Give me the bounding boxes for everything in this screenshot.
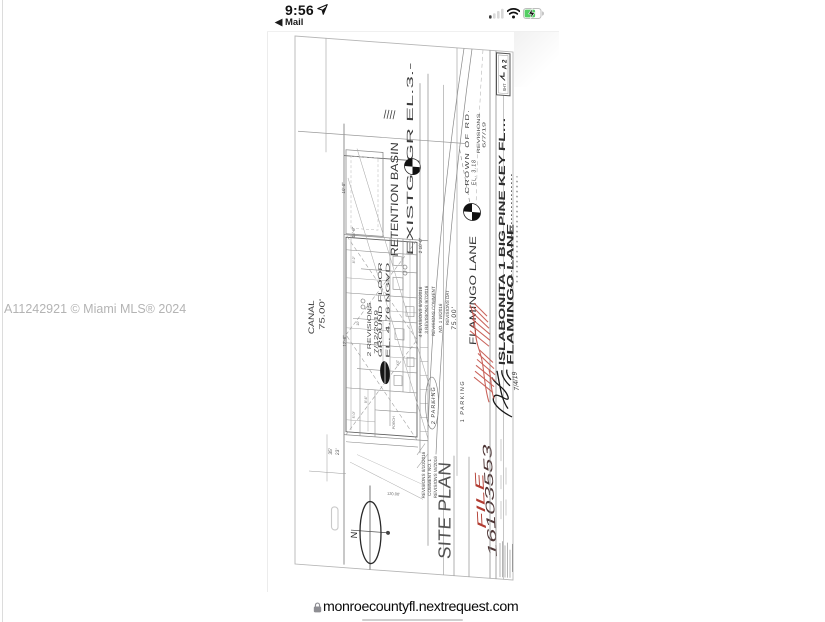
svg-text:SITE PLAN: SITE PLAN bbox=[435, 461, 455, 559]
svg-text:3 REVISIONS 9/7/2016: 3 REVISIONS 9/7/2016 bbox=[424, 285, 429, 334]
svg-text:FLAMINGO LANE: FLAMINGO LANE bbox=[468, 236, 479, 346]
svg-text:75.00': 75.00' bbox=[318, 298, 327, 331]
svg-text:10'-0": 10'-0" bbox=[341, 182, 346, 194]
svg-text:A 2: A 2 bbox=[502, 59, 509, 70]
svg-text:120.00': 120.00' bbox=[387, 491, 400, 497]
svg-text:CANAL: CANAL bbox=[307, 299, 316, 334]
svg-text:9'-6": 9'-6" bbox=[364, 395, 368, 403]
svg-text:8'-2": 8'-2" bbox=[352, 255, 356, 263]
svg-text:4 REVISIONS 8/10/2016: 4 REVISIONS 8/10/2016 bbox=[418, 286, 423, 337]
svg-text:2 PARKING: 2 PARKING bbox=[431, 386, 437, 424]
svg-text:6/7/19: 6/7/19 bbox=[482, 121, 487, 148]
svg-text:CROWN OF RD.: CROWN OF RD. bbox=[465, 108, 471, 193]
svg-text:35': 35' bbox=[328, 448, 334, 455]
svg-text:7/4/19: 7/4/19 bbox=[511, 371, 521, 391]
svg-text:2 10'-0": 2 10'-0" bbox=[418, 237, 423, 253]
svg-text:1 PARKING: 1 PARKING bbox=[460, 380, 466, 423]
svg-text:FLAMINGO LANE: FLAMINGO LANE bbox=[506, 223, 517, 365]
svg-text:10': 10' bbox=[356, 320, 360, 325]
svg-text:COMMENT NO. 1: COMMENT NO. 1 bbox=[427, 458, 432, 496]
svg-text:N: N bbox=[349, 531, 359, 538]
svg-text:5'-0": 5'-0" bbox=[352, 410, 356, 418]
svg-text:45'-6": 45'-6" bbox=[351, 226, 356, 238]
svg-text:23': 23' bbox=[335, 448, 341, 455]
svg-text:REVISIONS: REVISIONS bbox=[476, 113, 481, 153]
svg-text:RETENTION BASIN: RETENTION BASIN bbox=[389, 142, 401, 257]
svg-text:EL. 3.18: EL. 3.18 bbox=[472, 159, 478, 185]
svg-text:SHT: SHT bbox=[502, 83, 507, 92]
svg-text:REVISIONS 8/10/2016: REVISIONS 8/10/2016 bbox=[421, 451, 426, 498]
svg-text:2 REVISIONS: 2 REVISIONS bbox=[367, 302, 373, 357]
svg-text:EL. 4.76 NGVD: EL. 4.76 NGVD bbox=[386, 262, 392, 358]
svg-text:PORCH: PORCH bbox=[392, 416, 396, 430]
svg-text:NO. 1 W/2016: NO. 1 W/2016 bbox=[438, 303, 443, 333]
svg-text:GROUND FLOOR: GROUND FLOOR bbox=[378, 262, 384, 358]
